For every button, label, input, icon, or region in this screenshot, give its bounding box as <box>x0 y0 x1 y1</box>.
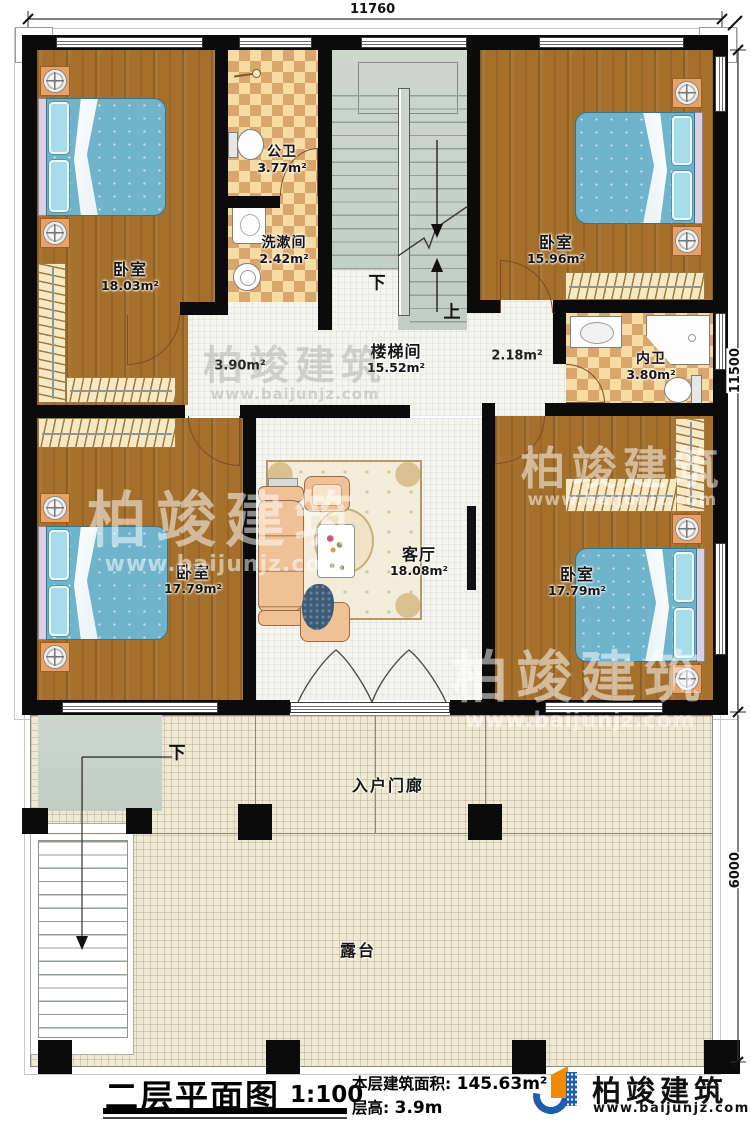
window <box>715 56 726 112</box>
nightstand <box>40 493 70 523</box>
column <box>22 808 48 834</box>
nightstand <box>672 514 702 544</box>
window <box>715 313 726 370</box>
room-label-bedroom-tr: 卧室 15.96m² <box>527 234 585 266</box>
floor-plan: 卧室 18.03m² 公卫 3.77m² 洗漱间 2.42m² 楼梯间 15.5… <box>0 0 750 1128</box>
light-fixture-bulb <box>252 69 261 78</box>
landing-line-h <box>82 757 162 758</box>
stair-stringer <box>398 88 410 316</box>
pillow <box>49 586 69 636</box>
bed <box>38 526 168 640</box>
wall-bed1-bath <box>215 50 228 302</box>
window <box>545 702 663 713</box>
pillow <box>49 530 69 580</box>
coffee-table <box>317 524 355 578</box>
tv <box>467 506 476 590</box>
wall-living-bed4 <box>482 416 495 700</box>
room-label-living: 客厅 18.08m² <box>390 546 448 578</box>
nightstand <box>672 78 702 108</box>
room-label-bedroom-br: 卧室 17.79m² <box>548 566 606 598</box>
round-sink-basin <box>240 270 256 286</box>
sofa-armrest <box>258 610 304 626</box>
pillow <box>49 102 69 154</box>
stair-base-patch <box>332 270 398 330</box>
terrace-column <box>266 1040 300 1074</box>
wardrobe <box>675 418 705 512</box>
room-label-bedroom-tl: 卧室 18.03m² <box>101 261 159 293</box>
bed-headboard <box>696 548 705 662</box>
bed <box>38 98 166 216</box>
wall-hall-bottom <box>240 405 410 418</box>
wall-innerbath-bottom-b <box>545 403 728 416</box>
window <box>361 37 467 48</box>
wall-bed1-hall <box>180 302 228 315</box>
room-label-bath-inner: 内卫 3.80m² <box>626 352 675 382</box>
stair-flight-left <box>332 95 398 270</box>
stair-up-label: 上 <box>444 298 461 323</box>
armchair-cushion <box>312 484 342 506</box>
sheet-height-info: 层高: 3.9m <box>352 1096 442 1118</box>
nightstand <box>672 226 702 256</box>
hall-area-right: 2.18m² <box>491 349 542 364</box>
wall-innerbath-bottom-a <box>482 403 495 416</box>
stair-flight-right <box>410 95 467 330</box>
dim-right-lower: 6000 <box>726 852 746 888</box>
pillow <box>49 160 69 212</box>
wall-bath-divider <box>228 196 280 208</box>
title-underline-thin <box>103 1117 347 1119</box>
shower-drain <box>688 334 696 342</box>
room-label-bedroom-bl: 卧室 17.79m² <box>164 564 222 596</box>
terrace-column <box>512 1040 546 1074</box>
porch-column <box>238 804 272 840</box>
outdoor-landing <box>38 715 162 811</box>
pillow <box>674 608 694 658</box>
wardrobe <box>38 263 66 403</box>
outdoor-stairs <box>38 840 128 1038</box>
nightstand <box>40 218 70 248</box>
terrace-column <box>38 1040 72 1074</box>
bed <box>575 112 703 224</box>
title-underline-thick <box>103 1108 347 1114</box>
window <box>539 37 684 48</box>
nightstand <box>672 664 702 694</box>
pillow <box>672 171 692 220</box>
logo-tower-icon <box>566 1072 577 1106</box>
landing-line-v <box>82 757 83 810</box>
wall-bed2-bottom-a <box>480 300 500 313</box>
wall-bed3-living <box>243 405 256 700</box>
wall-bath-stairs <box>318 50 332 330</box>
wardrobe <box>565 272 705 300</box>
wall-innerbath-left <box>553 313 566 364</box>
stair-down-label: 下 <box>369 269 386 294</box>
wall-stairs-bed2 <box>467 50 480 313</box>
porch-axis-line <box>375 715 376 833</box>
wardrobe <box>66 377 176 403</box>
room-label-stairwell: 楼梯间 15.52m² <box>367 343 425 375</box>
dim-right-upper: 11500 <box>726 348 746 393</box>
wall-bed3-top <box>35 405 185 418</box>
window <box>56 37 203 48</box>
wardrobe <box>38 418 176 448</box>
pillow <box>672 116 692 165</box>
room-label-terrace: 露台 <box>340 942 376 960</box>
window <box>239 37 312 48</box>
wall-left <box>22 50 37 715</box>
brand-url: www.baijunjz.com <box>593 1101 750 1116</box>
room-label-bath-public: 公卫 3.77m² <box>257 145 306 175</box>
dim-top: 11760 <box>347 3 398 17</box>
vanity-basin <box>580 322 614 344</box>
column <box>126 808 152 834</box>
window <box>62 702 218 713</box>
hall-area-left: 3.90m² <box>214 359 265 374</box>
pillow <box>674 552 694 602</box>
wall-bed2-bottom-b <box>553 300 728 313</box>
window <box>715 543 726 655</box>
porch-axis-line <box>255 715 256 805</box>
porch-column <box>468 804 502 840</box>
bed-headboard <box>694 112 703 224</box>
wardrobe <box>565 478 677 512</box>
entry-door-sill <box>290 702 450 713</box>
room-label-porch: 入户门廊 <box>352 777 424 795</box>
sheet-area-info: 本层建筑面积: 145.63m² <box>352 1072 547 1094</box>
nightstand <box>40 66 70 96</box>
washing-machine-door <box>240 214 260 236</box>
terrace-stair-down-label: 下 <box>169 739 186 764</box>
nightstand <box>40 642 70 672</box>
room-label-washroom: 洗漱间 2.42m² <box>259 236 308 266</box>
porch-axis-line <box>485 715 486 805</box>
toilet-tank <box>691 375 702 405</box>
sofa-three-seat <box>258 500 304 612</box>
